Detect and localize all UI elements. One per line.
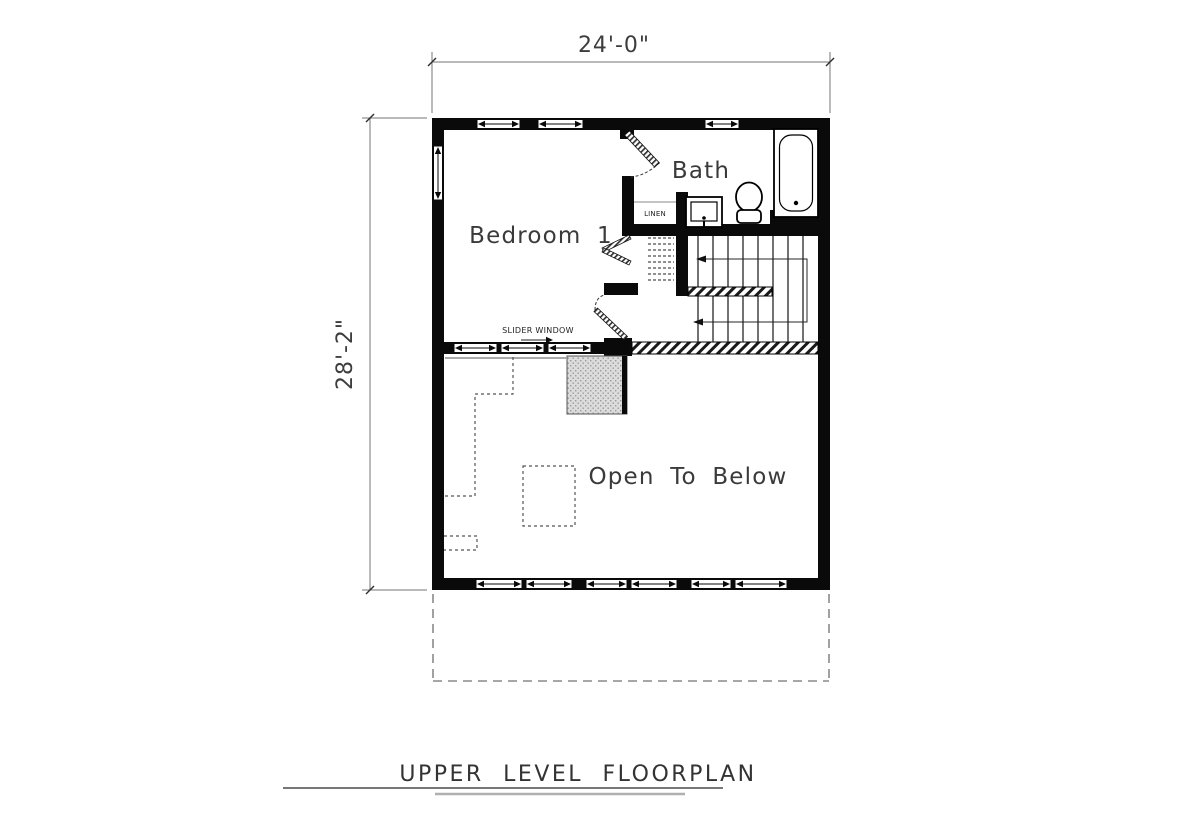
chimney-edge <box>622 356 627 414</box>
tub-drain <box>794 201 798 205</box>
below-cabinet-dashed <box>444 536 477 550</box>
window <box>454 344 497 353</box>
faucet-knob <box>702 216 706 220</box>
window <box>476 580 522 589</box>
window <box>735 580 787 589</box>
below-column-dashed <box>523 466 575 526</box>
window-left-wall <box>434 146 443 200</box>
window <box>548 344 591 353</box>
window <box>691 580 731 589</box>
mid-wall-post <box>604 338 632 356</box>
closet-shelves <box>648 238 674 280</box>
window <box>705 120 739 129</box>
bath-door-swing-arc <box>629 166 656 177</box>
sink-vanity <box>686 197 722 227</box>
bathtub <box>774 129 818 217</box>
stairs <box>648 236 807 342</box>
chimney-block <box>567 356 627 414</box>
bifold-leaf <box>602 248 631 265</box>
toilet <box>736 183 762 224</box>
open-to-below-label: Open To Below <box>588 464 787 490</box>
left-dimension: 28'-2" <box>333 114 427 594</box>
below-outline-dashed <box>445 357 513 496</box>
bedroom1-label: Bedroom 1 <box>469 223 613 249</box>
linen-closet: LINEN <box>634 202 676 218</box>
bath-door <box>625 131 660 177</box>
right-wall <box>818 118 830 590</box>
bedroom-door-swing-arc <box>595 295 604 310</box>
title-block: UPPER LEVEL FLOORPLAN <box>283 762 757 794</box>
bath-door-leaf <box>625 131 660 167</box>
floorplan-drawing: 24'-0" 28'-2" <box>0 0 1200 818</box>
window <box>538 120 583 129</box>
drawing-title: UPPER LEVEL FLOORPLAN <box>399 762 756 787</box>
bedroom-door <box>594 295 628 340</box>
window <box>586 580 627 589</box>
mid-wall-railing-hatch <box>632 342 818 354</box>
stair-rail-hatch <box>688 287 772 296</box>
closet-bottom-stub <box>604 283 638 295</box>
window <box>526 580 572 589</box>
window <box>477 120 520 129</box>
linen-label: LINEN <box>644 210 666 218</box>
slider-window-label: SLIDER WINDOW <box>502 326 574 335</box>
bath-label: Bath <box>672 158 730 184</box>
height-dimension-label: 28'-2" <box>333 318 358 390</box>
window <box>501 344 544 353</box>
width-dimension-label: 24'-0" <box>578 33 650 58</box>
top-dimension: 24'-0" <box>428 33 834 113</box>
bedroom-door-leaf <box>594 308 628 340</box>
window <box>631 580 677 589</box>
deck-outline <box>433 594 829 681</box>
floorplan-sheet: 24'-0" 28'-2" <box>0 0 1200 818</box>
chimney <box>567 356 627 414</box>
